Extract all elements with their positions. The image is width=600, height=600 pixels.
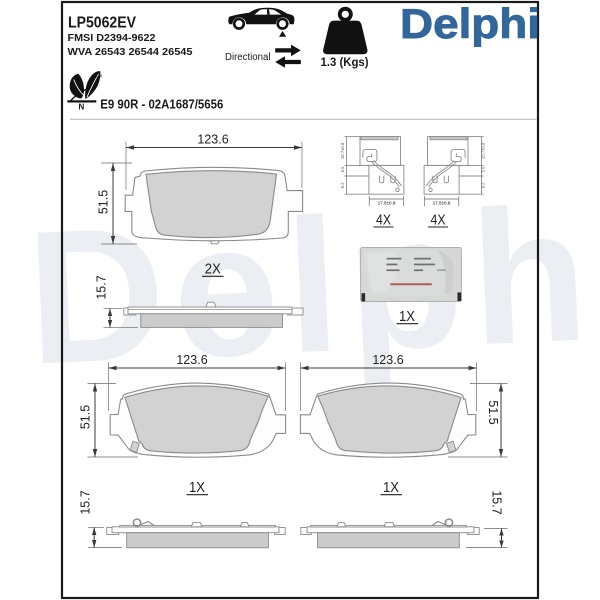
svg-text:N: N — [79, 103, 85, 112]
svg-text:TM: TM — [96, 74, 103, 79]
svg-text:FMSI D2394-9622: FMSI D2394-9622 — [68, 33, 156, 44]
svg-text:15.7: 15.7 — [79, 490, 93, 514]
svg-text:2X: 2X — [205, 261, 221, 278]
svg-text:1X: 1X — [399, 308, 415, 325]
svg-text:17.5±0.8: 17.5±0.8 — [433, 201, 451, 206]
svg-text:123.6: 123.6 — [176, 353, 207, 367]
svg-text:5.6: 5.6 — [340, 166, 345, 172]
svg-text:15.7±0.8: 15.7±0.8 — [340, 142, 345, 159]
svg-text:5.6: 5.6 — [481, 166, 486, 172]
svg-text:1.3 (Kgs): 1.3 (Kgs) — [321, 57, 369, 69]
svg-text:Directional: Directional — [225, 52, 271, 63]
svg-text:17.5±0.8: 17.5±0.8 — [378, 201, 396, 206]
svg-text:51.5: 51.5 — [486, 400, 500, 424]
svg-text:WVA 26543 26544 26545: WVA 26543 26544 26545 — [68, 47, 193, 58]
svg-text:4X: 4X — [431, 212, 446, 229]
svg-text:15.7: 15.7 — [95, 275, 109, 299]
svg-text:LP5062EV: LP5062EV — [68, 15, 137, 32]
svg-text:9.2: 9.2 — [340, 182, 345, 188]
svg-text:51.5: 51.5 — [79, 405, 93, 429]
svg-text:1X: 1X — [189, 479, 205, 496]
svg-text:Delphi: Delphi — [400, 0, 540, 47]
svg-text:E9 90R - 02A1687/5656: E9 90R - 02A1687/5656 — [100, 97, 223, 111]
svg-text:9.2: 9.2 — [481, 182, 486, 188]
svg-text:51.5: 51.5 — [97, 190, 111, 214]
svg-text:15.7±0.8: 15.7±0.8 — [481, 142, 486, 159]
svg-text:1X: 1X — [383, 479, 399, 496]
svg-text:15.7: 15.7 — [490, 490, 504, 514]
svg-text:4X: 4X — [376, 212, 391, 229]
svg-text:123.6: 123.6 — [372, 353, 403, 367]
svg-text:123.6: 123.6 — [197, 133, 228, 147]
